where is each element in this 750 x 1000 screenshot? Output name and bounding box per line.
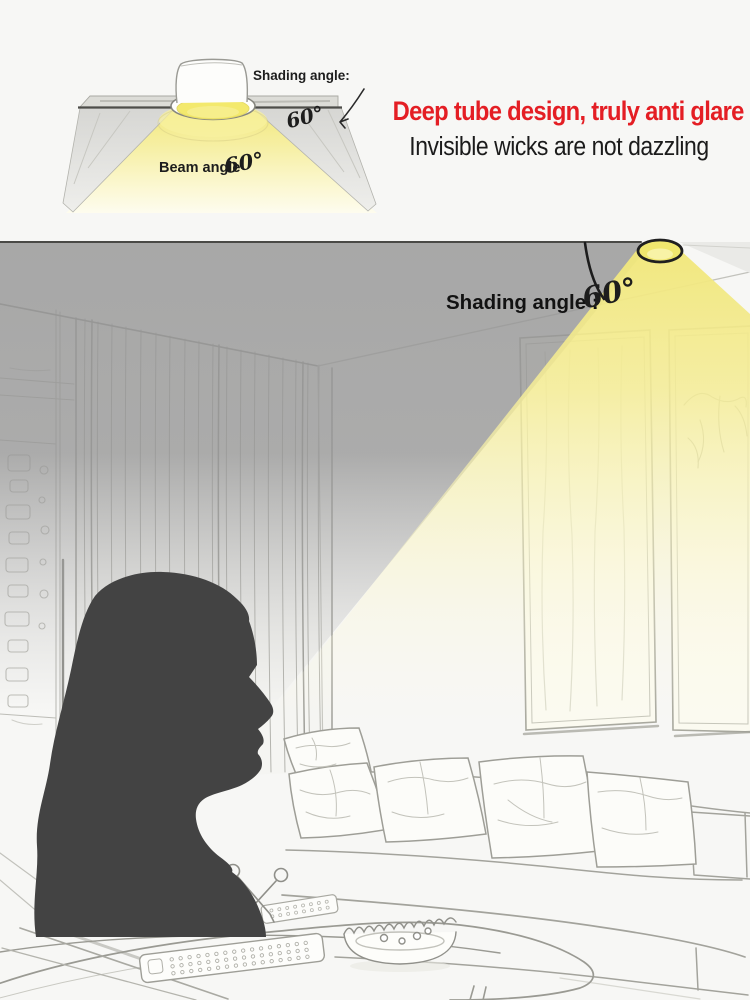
headline-subtitle: Invisible wicks are not dazzling (389, 133, 729, 162)
scene-shading-angle-label: Shading angle : (446, 291, 599, 315)
diagram-lamp-tube (176, 59, 247, 103)
downlight-hotspot (647, 249, 673, 260)
sofa-pillows (284, 728, 696, 867)
diagram-lamp-hotspot (187, 106, 239, 118)
living-room-scene (0, 240, 750, 1000)
sketch-ashtray-bowl (344, 918, 456, 972)
headline-title: Deep tube design, truly anti glare (393, 96, 726, 127)
product-poster: Shading angle: 60° Beam angle 60° Deep t… (0, 0, 750, 1000)
diagram-shading-angle-label: Shading angle: (253, 68, 350, 83)
